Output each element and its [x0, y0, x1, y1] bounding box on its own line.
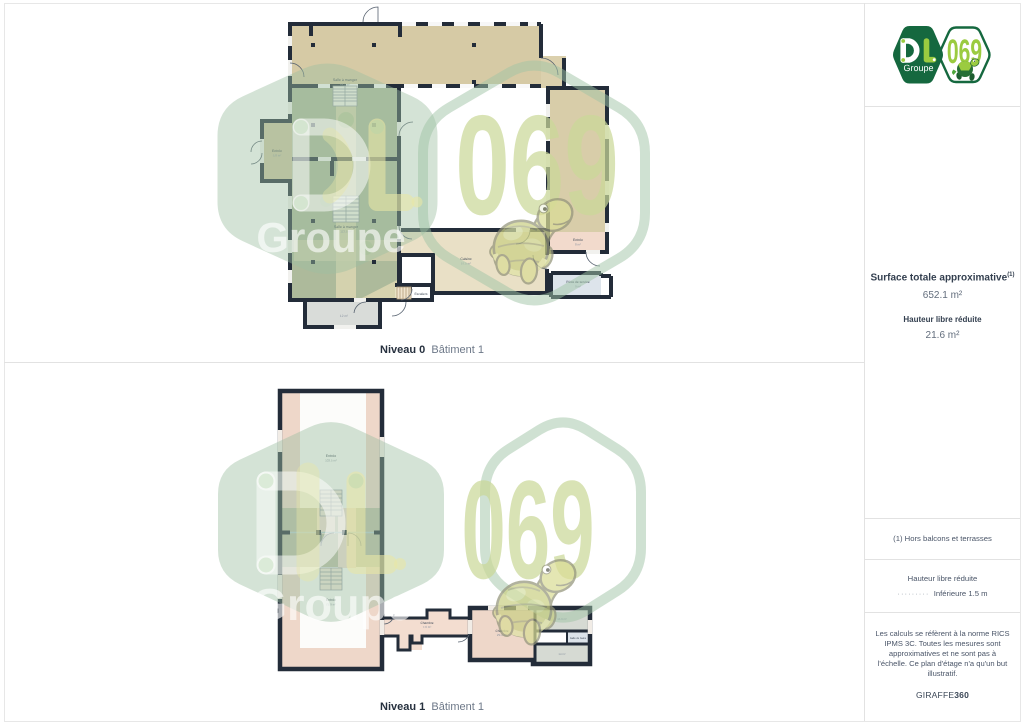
svg-text:7.6 m²: 7.6 m²: [423, 625, 432, 629]
svg-text:Groupe: Groupe: [252, 579, 412, 630]
svg-text:Escaliers: Escaliers: [415, 292, 428, 296]
svg-text:Groupe: Groupe: [903, 63, 933, 73]
svg-text:12 m²: 12 m²: [340, 314, 348, 318]
svg-text:Salle de bains: Salle de bains: [570, 637, 587, 640]
svg-text:14 m²: 14 m²: [558, 652, 565, 656]
svg-text:Groupe: Groupe: [256, 214, 405, 261]
